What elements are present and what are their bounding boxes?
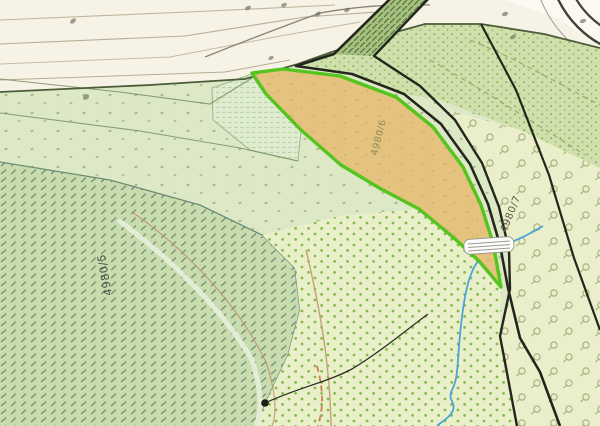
- map-svg: 4980/5 4980/6 4980/7: [0, 0, 600, 426]
- spot-elevation-dot: [261, 399, 269, 407]
- bridge-icon: [464, 236, 515, 254]
- map-canvas[interactable]: 4980/5 4980/6 4980/7: [0, 0, 600, 426]
